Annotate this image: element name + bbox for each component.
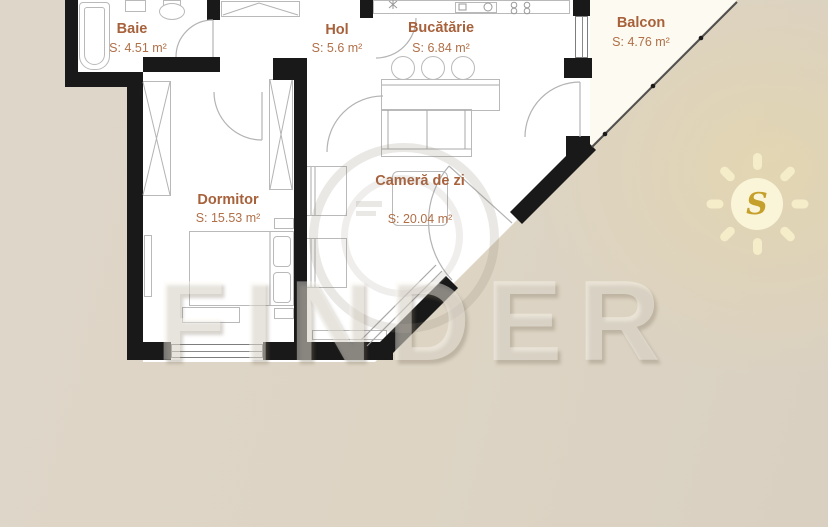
wall-segment bbox=[207, 0, 220, 20]
bedroom-shelf bbox=[144, 235, 152, 297]
nightstand bbox=[274, 218, 294, 229]
room-area-hol: S: 5.6 m² bbox=[312, 41, 363, 56]
room-area-bucatarie: S: 6.84 m² bbox=[412, 41, 470, 56]
wardrobe bbox=[269, 79, 293, 190]
floor-plan: Baie S: 4.51 m² Hol S: 5.6 m² Bucătărie … bbox=[0, 0, 828, 527]
room-label-baie: Baie bbox=[117, 20, 148, 38]
compass-south-letter: S bbox=[746, 187, 768, 222]
room-label-hol: Hol bbox=[325, 21, 348, 39]
wall-segment bbox=[273, 58, 307, 80]
kitchen-sink bbox=[455, 2, 497, 13]
wall-segment bbox=[564, 58, 592, 78]
bar-stool bbox=[421, 56, 445, 80]
wall-segment bbox=[566, 136, 590, 156]
room-area-balcon: S: 4.76 m² bbox=[612, 35, 670, 50]
washing-machine bbox=[125, 0, 146, 12]
room-label-bucatarie: Bucătărie bbox=[408, 19, 474, 37]
wall-segment bbox=[360, 0, 373, 18]
bar-stool bbox=[391, 56, 415, 80]
wall-segment bbox=[65, 0, 78, 77]
room-area-baie: S: 4.51 m² bbox=[109, 41, 167, 56]
bar-stool bbox=[451, 56, 475, 80]
wall-segment bbox=[127, 77, 143, 360]
room-label-dormitor: Dormitor bbox=[197, 191, 258, 209]
bathtub-inner bbox=[84, 7, 105, 65]
toilet-bowl bbox=[159, 3, 185, 20]
wall-segment bbox=[573, 0, 590, 16]
watermark-logo-bar bbox=[356, 201, 382, 207]
sun-disc: S bbox=[731, 178, 783, 230]
kitchen-window bbox=[575, 16, 588, 58]
watermark-logo-bar bbox=[356, 211, 376, 216]
room-area-dormitor: S: 15.53 m² bbox=[196, 211, 261, 226]
wall-segment bbox=[143, 57, 220, 72]
kitchen-island bbox=[381, 79, 500, 111]
room-label-balcon: Balcon bbox=[617, 14, 665, 32]
hall-closet bbox=[221, 1, 300, 17]
wardrobe bbox=[142, 81, 171, 196]
watermark-text: FINDER bbox=[156, 256, 676, 387]
